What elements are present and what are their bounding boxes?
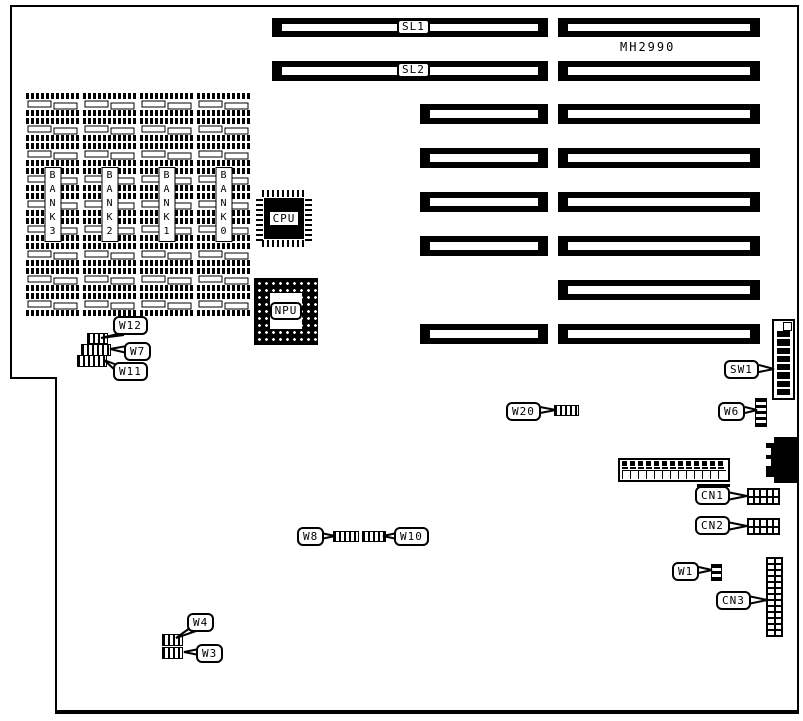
cpu-label: CPU [270,212,299,225]
board-edge-right [797,5,799,714]
keyboard-connector-hole [766,459,771,466]
callout-w20: W20 [506,402,541,421]
memory-bank-2: BANK2 [83,93,136,316]
jumper-w10-pins [362,531,386,542]
callout-cn3: CN3 [716,591,751,610]
board-edge-left-upper [10,5,12,379]
bank1-label: BANK1 [158,167,175,242]
callout-cn1: CN1 [695,486,730,505]
jumper-w11-pins [77,355,107,367]
npu-label: NPU [270,302,303,320]
expansion-slot [558,148,760,168]
bank3-label: BANK3 [44,167,61,242]
memory-bank-3: BANK3 [26,93,79,316]
connector-cn2-pins [747,518,780,535]
connector-cn3-pins [766,557,783,637]
memory-bank-1: BANK1 [140,93,193,316]
callout-w1: W1 [672,562,699,581]
callout-w7: W7 [124,342,151,361]
bank0-label: BANK0 [215,167,232,242]
npu-socket: NPU [254,278,318,345]
expansion-slot [420,104,548,124]
keyboard-connector [774,437,798,483]
npu-center: NPU [270,293,302,329]
jumper-w3-pins [162,647,183,659]
model-number: MH2990 [620,40,675,54]
cpu-chip: CPU [256,190,312,247]
callout-w10: W10 [394,527,429,546]
callout-w4: W4 [187,613,214,632]
board-edge-bottom [55,710,799,714]
jumper-w8-pins [333,531,359,542]
expansion-slot [558,18,760,37]
power-connector-dashes [622,467,726,469]
expansion-slot [558,104,760,124]
power-connector [618,458,730,482]
cpu-pins-top [262,190,306,197]
callout-w3: W3 [196,644,223,663]
jumper-w6-pins [755,398,767,427]
expansion-slot [420,236,548,256]
connector-cn1-pins [747,488,780,505]
jumper-w4-pins [162,634,183,646]
expansion-slot [558,236,760,256]
callout-w11: W11 [113,362,148,381]
cpu-body: CPU [264,198,304,239]
expansion-slot [420,324,548,344]
expansion-slot [420,148,548,168]
callout-sw1: SW1 [724,360,759,379]
memory-bank-0: BANK0 [197,93,250,316]
power-connector-sockets [622,470,726,479]
keyboard-connector-hole [766,448,771,455]
cpu-pins-right [305,196,312,241]
board-edge-top [10,5,799,7]
cpu-pins-left [256,196,263,241]
jumper-w20-pins [554,405,579,416]
jumper-w12-pins [87,333,108,344]
callout-w12: W12 [113,316,148,335]
bank2-label: BANK2 [101,167,118,242]
expansion-slot [558,280,760,300]
motherboard-diagram: BANK3 BANK2 BANK1 BANK0 CPU NPU [0,0,803,721]
callout-cn2: CN2 [695,516,730,535]
expansion-slot [558,192,760,212]
expansion-slot [558,324,760,344]
power-connector-tabs [622,461,726,466]
memory-bank-area: BANK3 BANK2 BANK1 BANK0 [26,93,250,316]
cpu-pins-bottom [262,240,306,247]
expansion-slot [558,61,760,81]
board-edge-notch [10,377,57,379]
jumper-w1-pins [711,564,722,581]
sl1-label: SL1 [397,19,430,35]
dip-switch-sw1 [772,319,795,400]
board-edge-left-lower [55,379,57,712]
callout-w8: W8 [297,527,324,546]
dip-switch-notch [783,322,792,331]
expansion-slot [420,192,548,212]
callout-w6: W6 [718,402,745,421]
sl2-label: SL2 [397,62,430,78]
